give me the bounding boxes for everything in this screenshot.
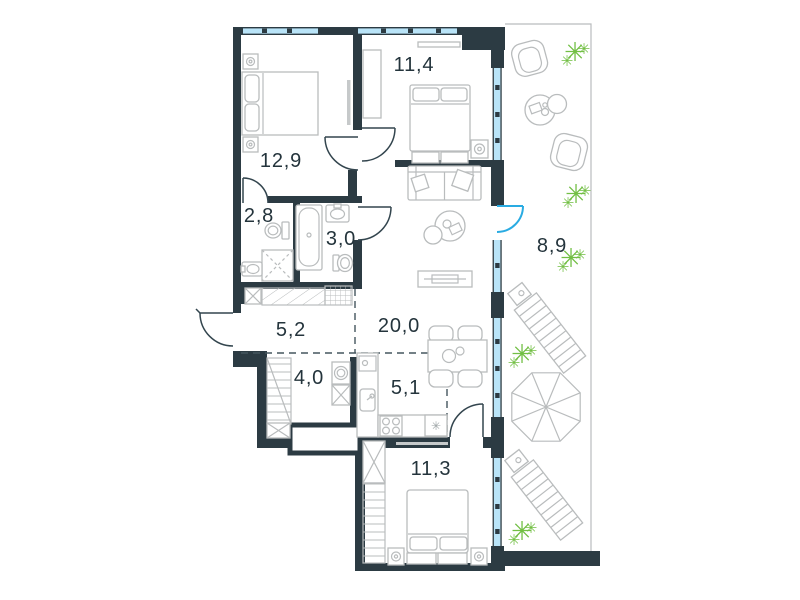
shoe-rack [325, 286, 352, 305]
shelf [418, 42, 460, 47]
terrace [501, 24, 591, 551]
balcony-door [497, 206, 523, 232]
terrace-armchair [509, 38, 549, 78]
dining-table [428, 340, 487, 372]
bedroom-3-door [450, 404, 483, 437]
wardrobe [262, 288, 325, 305]
room-label-living-room: 20,0 [378, 315, 420, 337]
entrance-door [196, 309, 233, 346]
bathroom-1-door [243, 178, 268, 203]
bedroom-1-door [325, 137, 358, 170]
chair [458, 370, 482, 387]
room-label-bedroom-2: 11,4 [394, 54, 435, 76]
chair [429, 370, 453, 387]
tv-panel [347, 80, 351, 125]
terrace-armchair [548, 131, 589, 172]
room-label-kitchen: 5,1 [391, 377, 421, 399]
floor-plan: ✳ ✳ ✳ [0, 0, 800, 600]
floor-plan-page: ✳ ✳ ✳ [0, 0, 800, 600]
room-label-bathroom-2: 3,0 [326, 228, 356, 250]
duct-shaft [290, 425, 360, 453]
umbrella [512, 373, 580, 441]
room-label-bathroom-1: 2,8 [244, 205, 274, 227]
room-label-bedroom-1: 12,9 [260, 150, 302, 172]
room-label-storage: 4,0 [294, 367, 324, 389]
furniture-hallway [245, 286, 352, 305]
room-label-terrace: 8,9 [537, 235, 567, 257]
furniture-bathroom-1 [241, 222, 293, 281]
toilet [282, 222, 289, 239]
shelving [363, 483, 385, 563]
bedroom-2-door [362, 128, 395, 161]
bathroom-2-door [358, 207, 391, 240]
room-label-hallway: 5,2 [276, 319, 306, 341]
tv-panel [396, 442, 448, 445]
room-label-bedroom-3: 11,3 [411, 458, 452, 480]
balcony-slab [496, 551, 600, 566]
wardrobe [363, 50, 381, 118]
snowflake-icon: ✳ [431, 419, 441, 433]
furniture-living-room [408, 166, 487, 387]
